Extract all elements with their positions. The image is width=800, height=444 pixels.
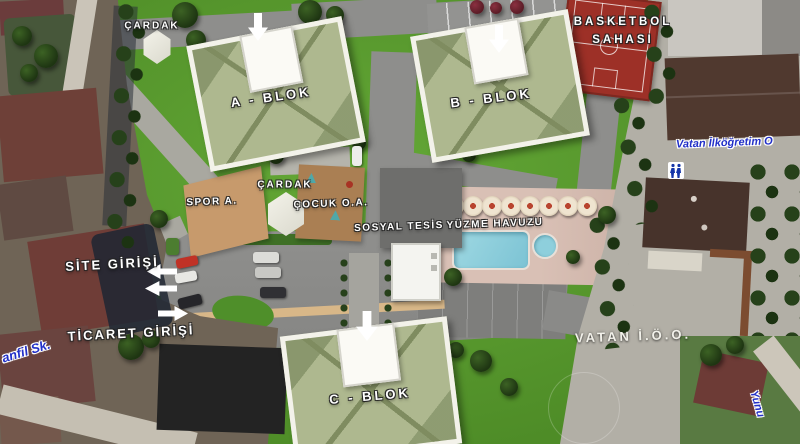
tree — [500, 378, 518, 396]
white-car — [352, 146, 362, 166]
umbrella-icon — [539, 196, 559, 216]
umbrella-icon — [482, 196, 502, 216]
roof-ridge — [666, 92, 800, 99]
play-equipment-icon — [346, 181, 353, 188]
tree — [726, 336, 744, 354]
red-bush — [510, 0, 524, 14]
roof-vent — [691, 196, 697, 202]
sat-building — [762, 0, 800, 56]
tree — [700, 344, 722, 366]
red-bush — [490, 2, 502, 14]
label-cardak-top: ÇARDAK — [124, 21, 179, 32]
umbrella-icon — [463, 196, 483, 216]
school-steps — [648, 251, 703, 272]
dark-car — [260, 287, 286, 298]
sat-dark-parking — [157, 344, 288, 434]
school-roof-top — [665, 54, 800, 141]
sosyal-tesis-roof — [380, 168, 462, 248]
tree — [470, 350, 492, 372]
site-plan-map: ÇARDAK A - BLOK B - BLOK C - BLOK BASKET… — [0, 0, 800, 444]
label-basketbol-line1: BASKETBOL — [574, 13, 673, 31]
red-bush — [470, 0, 484, 14]
label-basketbol-sahasi: BASKETBOL SAHASI — [574, 13, 673, 49]
label-spor-alani: SPOR A. — [186, 196, 238, 209]
tree-row — [746, 160, 800, 350]
penthouse — [239, 26, 303, 94]
tree — [150, 210, 168, 228]
umbrella-icon — [501, 196, 521, 216]
white-car — [253, 252, 279, 263]
ac-unit — [431, 265, 437, 271]
sosyal-tesis-building — [391, 243, 441, 301]
tree — [566, 250, 580, 264]
court-key-bottom — [592, 67, 618, 89]
play-equipment-icon — [330, 210, 341, 221]
umbrella-icon — [558, 196, 578, 216]
tree — [598, 206, 616, 224]
tree — [34, 44, 58, 68]
label-cardak-center: ÇARDAK — [257, 180, 312, 191]
sat-roof — [0, 175, 74, 240]
tree — [12, 26, 32, 46]
ac-unit — [431, 253, 437, 259]
label-basketbol-line2: SAHASI — [574, 31, 673, 49]
tree — [20, 64, 38, 82]
gray-car — [255, 267, 281, 278]
yard-marking — [548, 372, 620, 444]
roof-vent — [701, 224, 707, 230]
green-minibus — [166, 238, 179, 255]
pedestrian-crossing-icon — [668, 162, 684, 184]
walkway-bushes-left — [336, 256, 350, 334]
sat-roof — [0, 88, 104, 182]
tree — [444, 268, 462, 286]
umbrella-icon — [520, 196, 540, 216]
round-pool — [532, 233, 558, 259]
swimming-pool — [452, 230, 530, 270]
